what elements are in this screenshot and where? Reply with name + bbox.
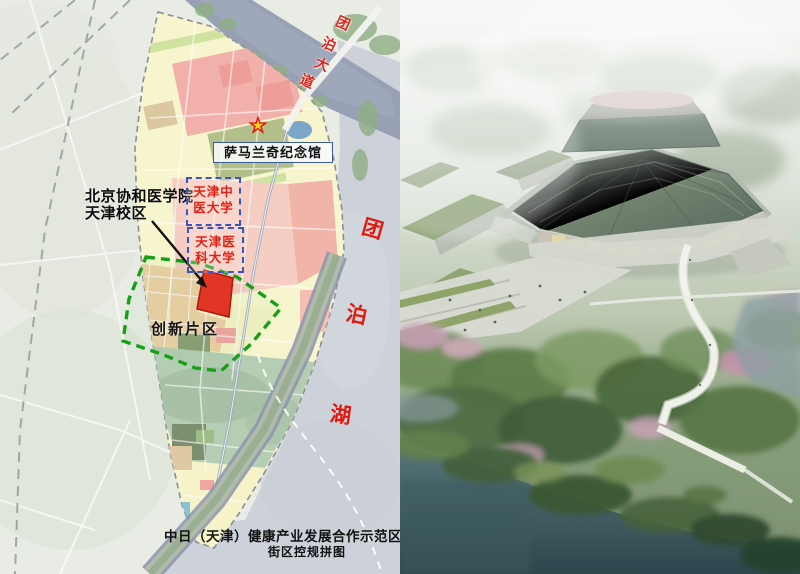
map-caption-line2: 街区控规拼图 [252,543,362,560]
map-graphic [0,0,400,574]
lake-label-char: 湖 [329,404,353,428]
lake-label-char: 泊 [344,303,369,328]
pumc-campus-label-line2: 天津校区 [85,205,194,222]
medical-university-box: 天津医 科大学 [187,227,244,273]
tcm-university-line2: 医大学 [188,200,239,216]
tcm-university-line1: 天津中 [188,184,239,200]
planning-map-panel: 团 泊 大 道 ★ 萨马兰奇纪念馆 北京协和医学院 天津校区 天津中 医大学 天… [0,0,400,574]
map-caption-line1: 中日（天津）健康产业发展合作示范区 [158,525,400,545]
memorial-label-box: 萨马兰奇纪念馆 [213,142,333,163]
pumc-campus-label-line1: 北京协和医学院 [85,188,194,205]
rendering-graphic [400,0,800,574]
innovation-district-label: 创新片区 [151,318,219,339]
memorial-rendering-panel [400,0,800,574]
tcm-university-box: 天津中 医大学 [186,177,241,226]
medical-university-line1: 天津医 [189,234,242,250]
composite-image: 团 泊 大 道 ★ 萨马兰奇纪念馆 北京协和医学院 天津校区 天津中 医大学 天… [0,0,800,574]
medical-university-line2: 科大学 [189,250,242,266]
pumc-campus-label: 北京协和医学院 天津校区 [85,188,194,222]
memorial-star-icon: ★ [249,116,267,136]
